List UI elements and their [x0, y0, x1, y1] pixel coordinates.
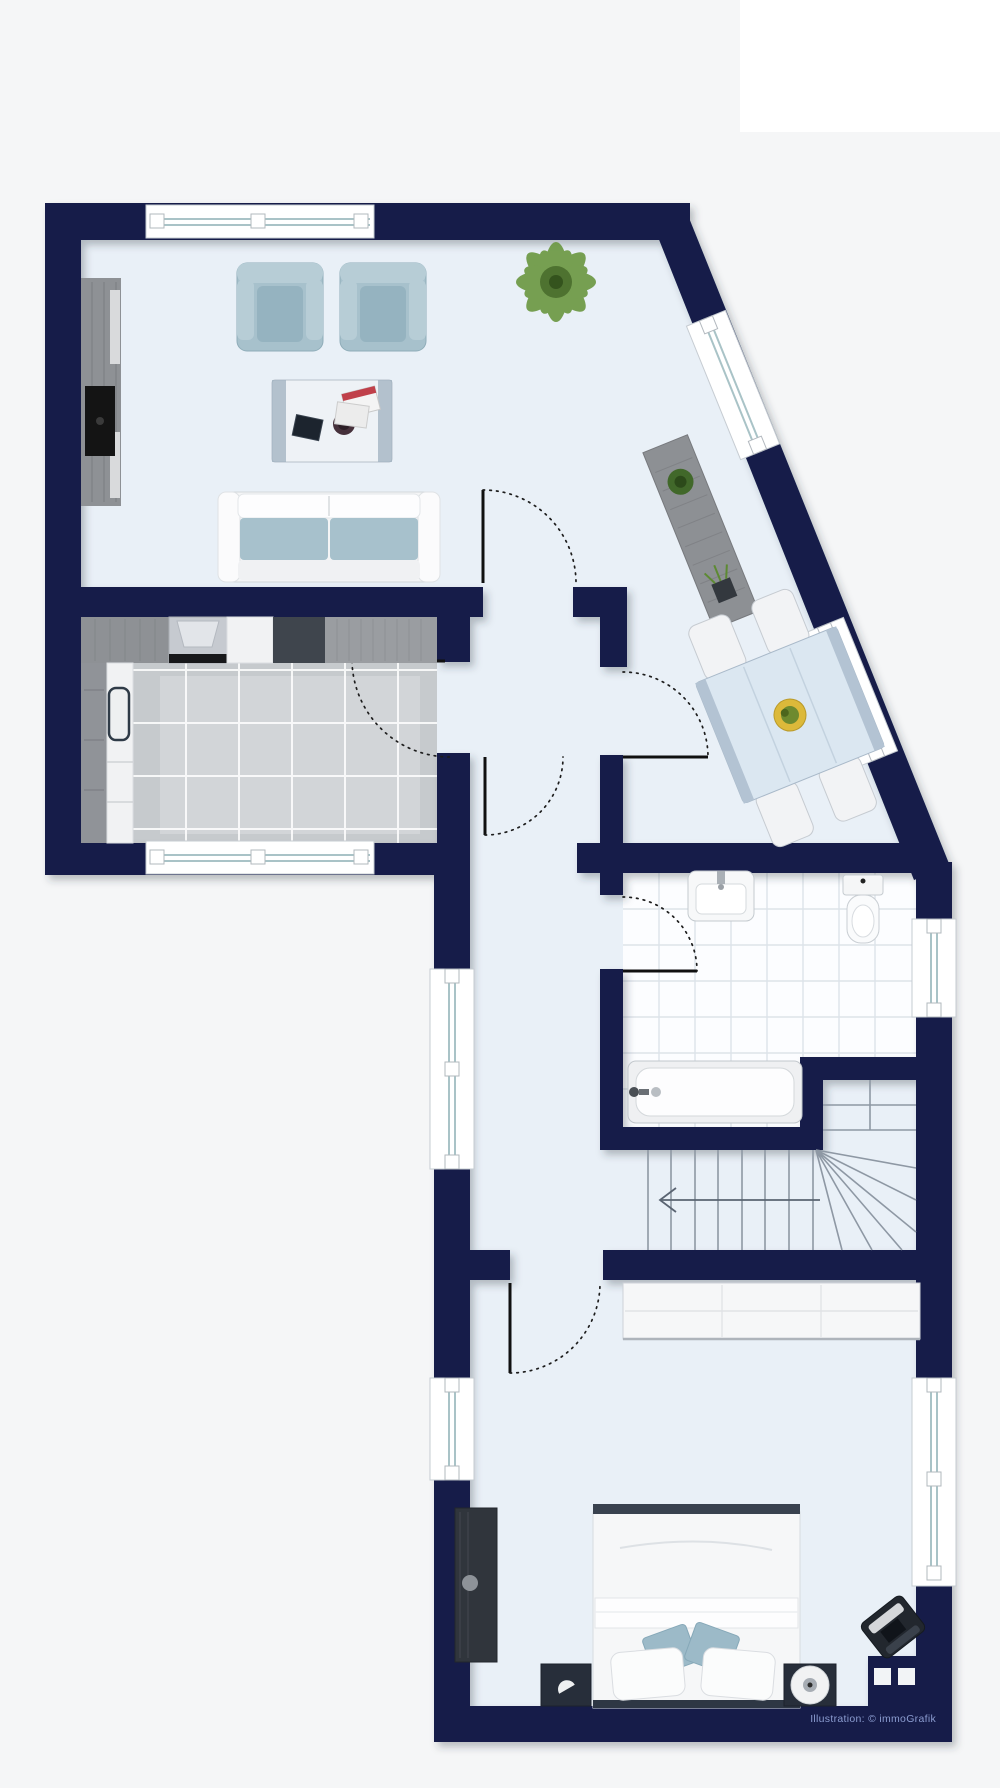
wall-tub-niche — [600, 1127, 823, 1150]
background-white-band — [740, 0, 1000, 132]
chimney-flue — [874, 1668, 891, 1685]
window-bathroom-right — [912, 919, 956, 1017]
wall-bath-left — [600, 969, 623, 1150]
window-kitchen-bottom — [146, 841, 374, 874]
window-living-top — [146, 205, 374, 238]
wall-bedroom-stub — [434, 1250, 510, 1280]
potted-plant-icon — [516, 242, 596, 322]
wall-bath-top — [577, 843, 916, 873]
armchair-icon — [237, 263, 323, 351]
wall-stairs-bedroom — [603, 1250, 952, 1280]
sofa-icon — [218, 492, 440, 582]
floor-plan-canvas: Illustration: © immoGrafik — [0, 0, 1000, 1788]
nightstand-icon — [784, 1664, 836, 1706]
stove-icon — [169, 617, 227, 663]
nightstand-icon — [541, 1664, 591, 1706]
fridge-handle-icon — [109, 688, 129, 740]
floor-plan-page: Illustration: © immoGrafik — [0, 0, 1000, 1788]
armchair-icon — [340, 263, 426, 351]
kitchen-counter-left — [81, 663, 133, 843]
pillow-icon — [700, 1647, 776, 1701]
wall-hall-bath — [600, 755, 623, 895]
chimney-flue — [898, 1668, 915, 1685]
wardrobe-icon — [623, 1283, 920, 1339]
sink-icon — [688, 871, 754, 921]
pillow-icon — [610, 1647, 686, 1701]
window-bedroom-right — [912, 1378, 956, 1586]
kitchen-counter-top — [81, 617, 437, 663]
wall-living-kitchen — [81, 587, 483, 617]
tv-sideboard-icon — [81, 278, 121, 506]
double-bed-icon — [593, 1504, 800, 1708]
wall-left — [45, 203, 81, 875]
bathtub-icon — [628, 1061, 802, 1123]
wall-bath-bottom-right — [800, 1057, 916, 1080]
kitchen-cabinet-icon — [273, 617, 325, 663]
window-bedroom-left — [430, 1378, 474, 1480]
dresser-icon — [455, 1508, 497, 1662]
wall-kitchen-right-lower — [437, 753, 470, 843]
coffee-table-icon — [272, 380, 392, 462]
window-corridor-left — [430, 969, 474, 1169]
toilet-icon — [843, 875, 883, 943]
wall-kitchen-right-upper — [437, 617, 470, 662]
watermark-text: Illustration: © immoGrafik — [810, 1713, 936, 1725]
